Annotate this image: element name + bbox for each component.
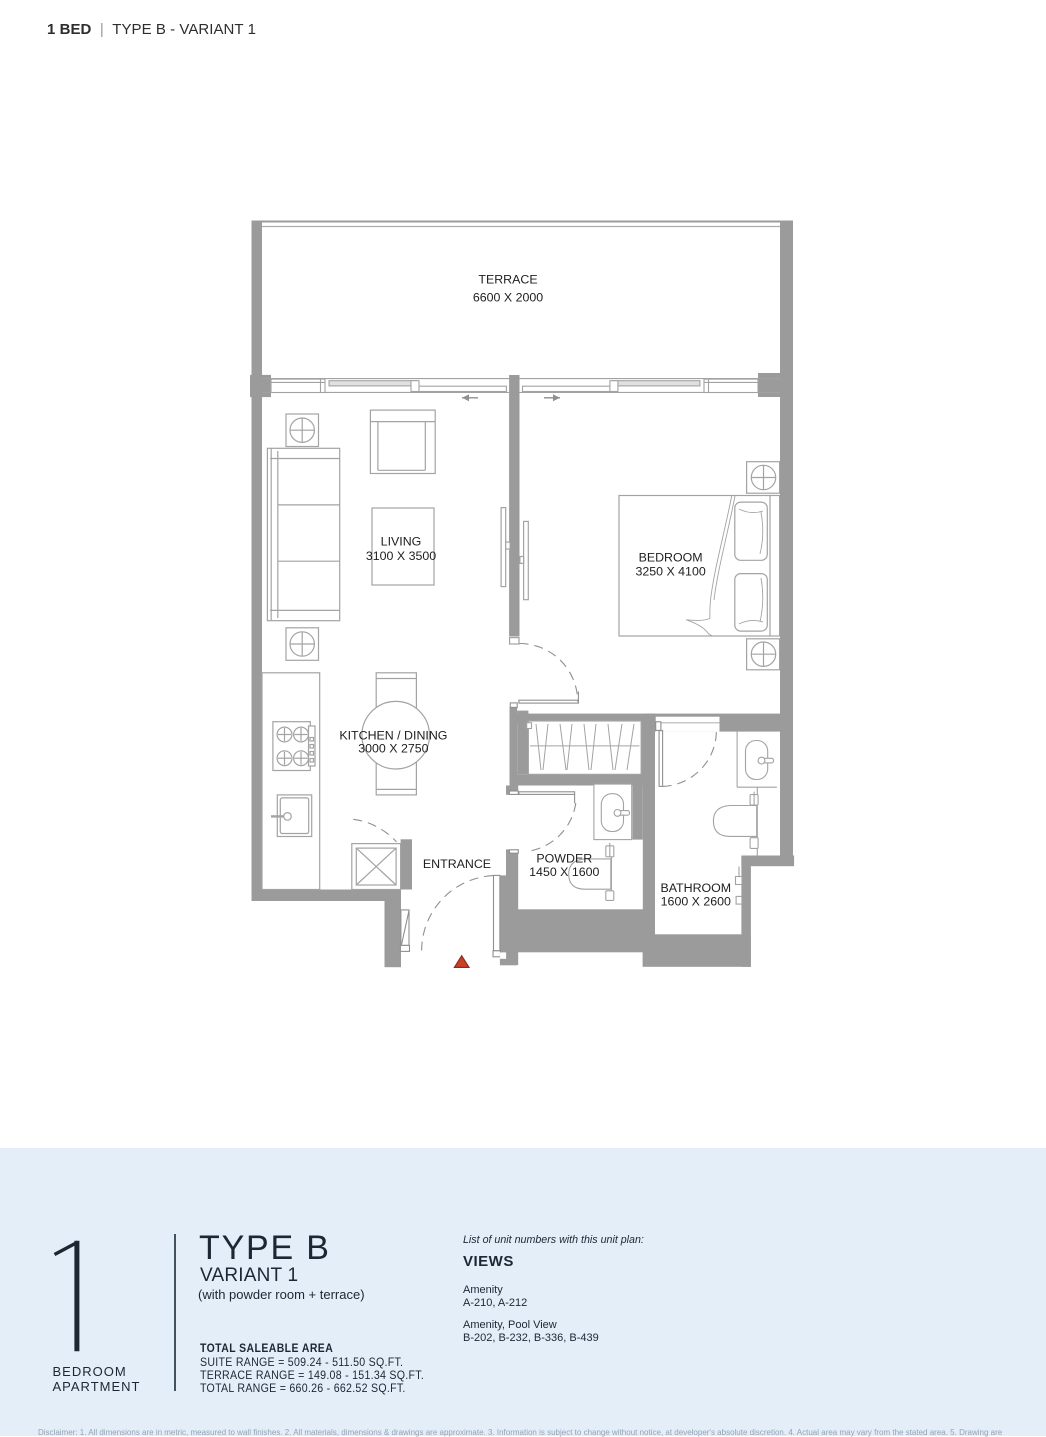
- svg-text:3100 X 3500: 3100 X 3500: [366, 549, 436, 563]
- svg-text:ENTRANCE: ENTRANCE: [423, 857, 491, 871]
- svg-text:POWDER: POWDER: [536, 852, 592, 866]
- svg-text:1600 X 2600: 1600 X 2600: [661, 894, 731, 908]
- svg-text:6600 X 2000: 6600 X 2000: [473, 291, 543, 305]
- svg-text:3250 X 4100: 3250 X 4100: [635, 565, 705, 579]
- svg-text:TERRACE: TERRACE: [478, 273, 537, 287]
- svg-text:LIVING: LIVING: [381, 535, 422, 549]
- svg-text:1450 X 1600: 1450 X 1600: [529, 865, 599, 879]
- svg-text:3000 X 2750: 3000 X 2750: [358, 741, 428, 755]
- svg-text:BATHROOM: BATHROOM: [660, 881, 731, 895]
- svg-text:BEDROOM: BEDROOM: [639, 551, 703, 565]
- svg-text:KITCHEN / DINING: KITCHEN / DINING: [339, 728, 447, 742]
